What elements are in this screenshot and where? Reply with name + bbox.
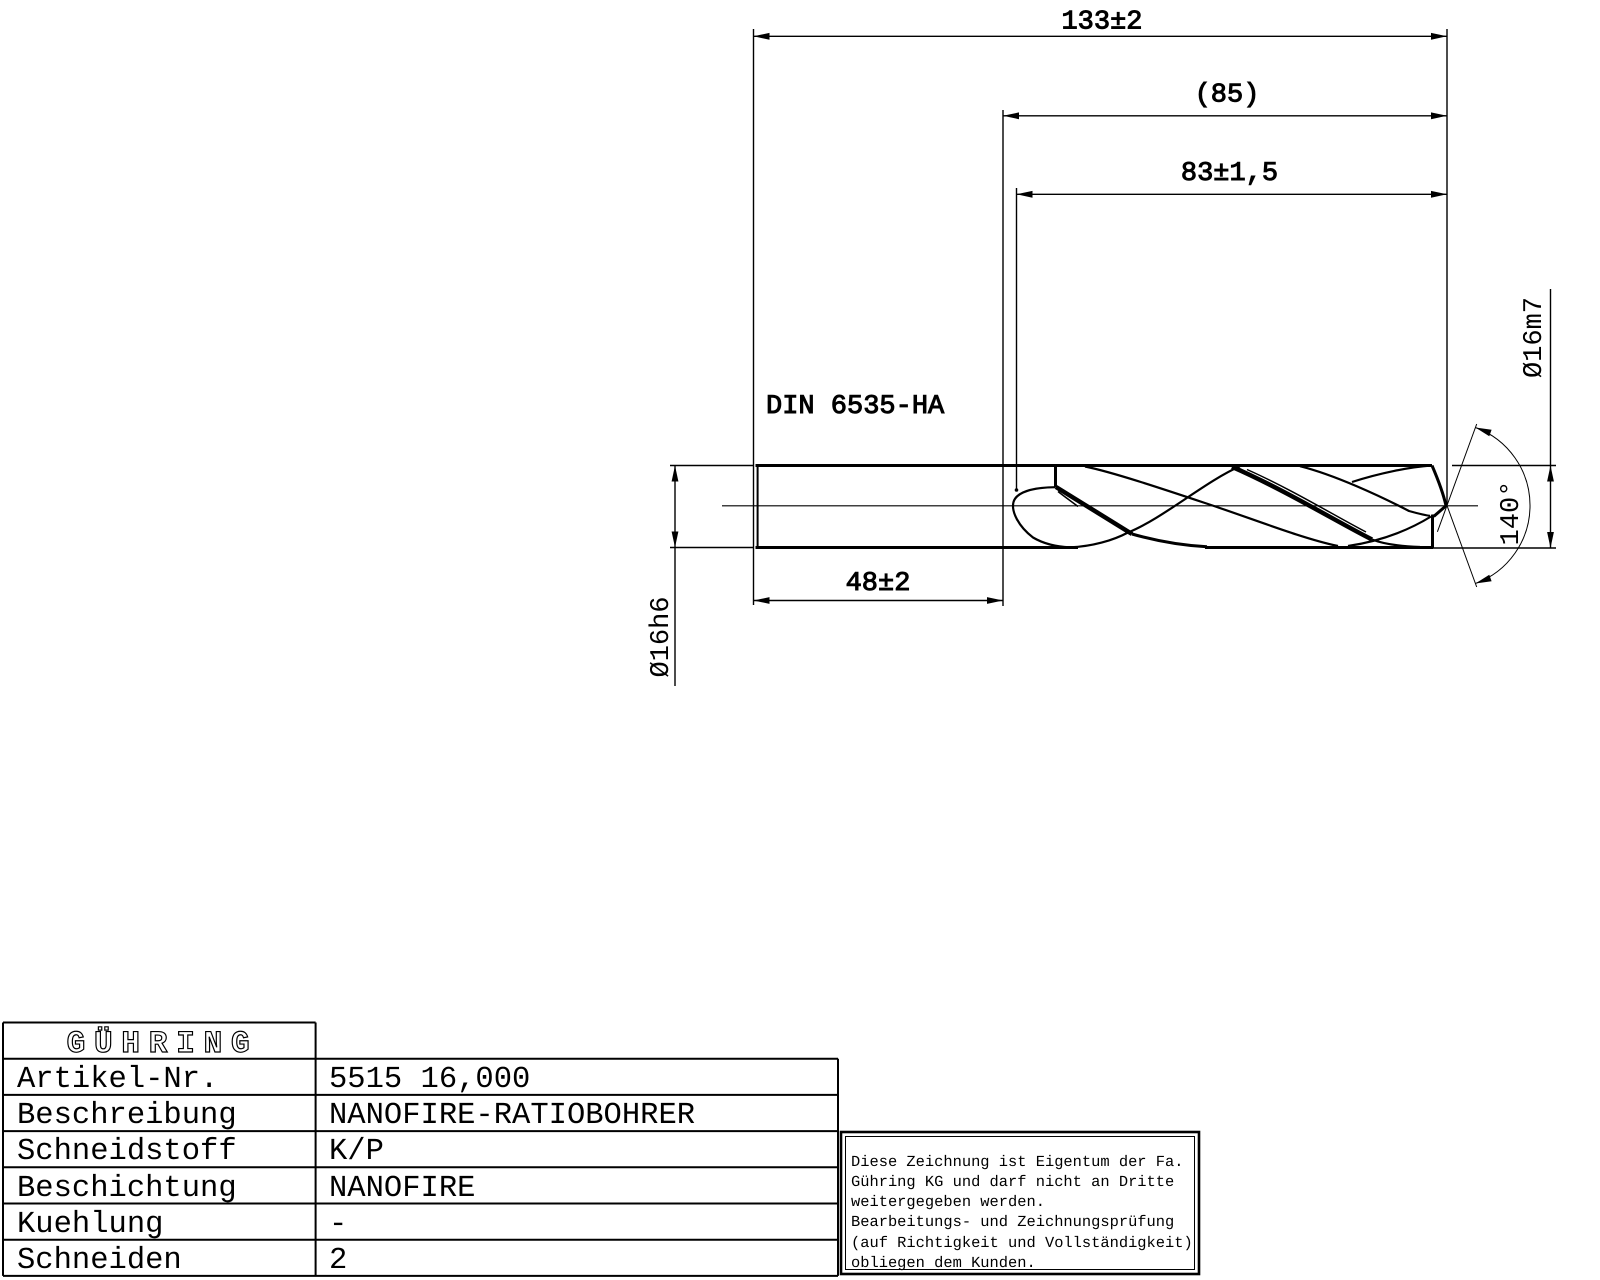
svg-text:Beschreibung: Beschreibung bbox=[17, 1099, 237, 1133]
svg-text:Kuehlung: Kuehlung bbox=[17, 1208, 163, 1242]
svg-text:2: 2 bbox=[329, 1244, 347, 1278]
svg-text:-: - bbox=[329, 1208, 347, 1242]
svg-text:weitergegeben werden.: weitergegeben werden. bbox=[851, 1193, 1045, 1211]
svg-text:83±1,5: 83±1,5 bbox=[1181, 159, 1278, 189]
svg-text:obliegen dem Kunden.: obliegen dem Kunden. bbox=[851, 1254, 1036, 1272]
svg-text:DIN 6535-HA: DIN 6535-HA bbox=[766, 392, 945, 422]
svg-text:Bearbeitungs- und Zeichnungspr: Bearbeitungs- und Zeichnungsprüfung bbox=[851, 1213, 1174, 1231]
svg-text:NANOFIRE-RATIOBOHRER: NANOFIRE-RATIOBOHRER bbox=[329, 1099, 695, 1133]
svg-text:NANOFIRE: NANOFIRE bbox=[329, 1172, 475, 1206]
svg-text:Artikel-Nr.: Artikel-Nr. bbox=[17, 1063, 218, 1097]
svg-text:GÜHRING: GÜHRING bbox=[67, 1026, 259, 1062]
svg-text:133±2: 133±2 bbox=[1061, 8, 1142, 38]
svg-text:5515 16,000: 5515 16,000 bbox=[329, 1063, 530, 1097]
svg-text:Schneidstoff: Schneidstoff bbox=[17, 1135, 237, 1169]
svg-text:Gühring KG und darf nicht an D: Gühring KG und darf nicht an Dritte bbox=[851, 1173, 1174, 1191]
svg-text:K/P: K/P bbox=[329, 1135, 384, 1169]
svg-text:Diese Zeichnung ist Eigentum d: Diese Zeichnung ist Eigentum der Fa. bbox=[851, 1153, 1184, 1171]
svg-text:Schneiden: Schneiden bbox=[17, 1244, 182, 1278]
svg-text:(auf Richtigkeit und Vollständ: (auf Richtigkeit und Vollständigkeit) bbox=[851, 1234, 1193, 1252]
svg-text:Beschichtung: Beschichtung bbox=[17, 1172, 237, 1206]
svg-text:(85): (85) bbox=[1195, 81, 1260, 111]
svg-text:48±2: 48±2 bbox=[846, 569, 911, 599]
